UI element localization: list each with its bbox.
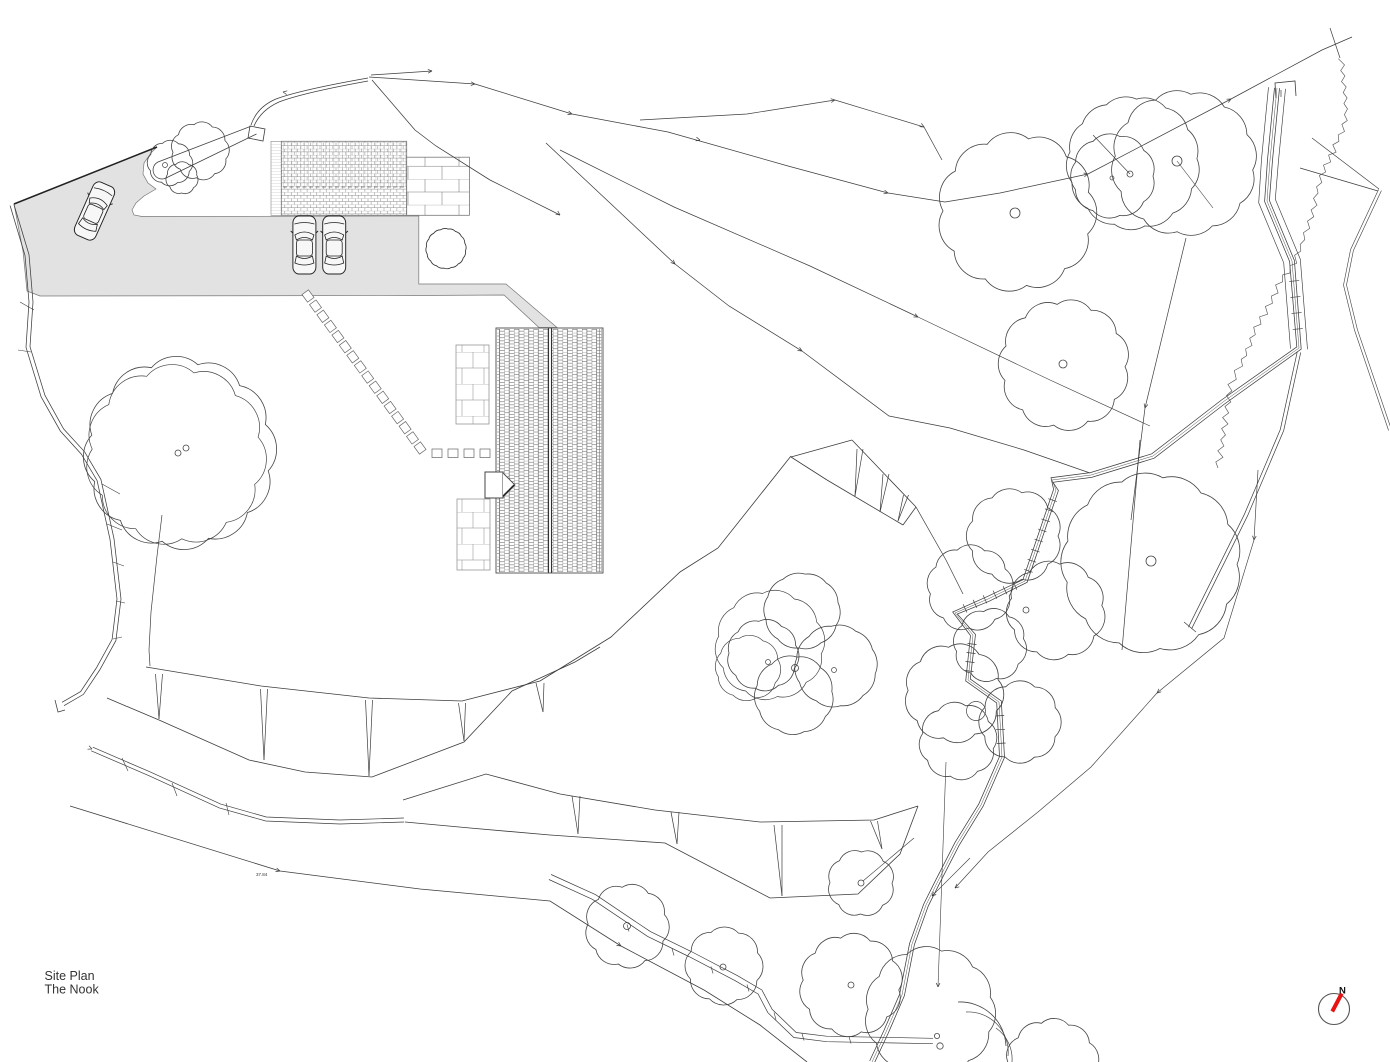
- svg-text:37.84: 37.84: [256, 872, 268, 877]
- svg-text:The Nook: The Nook: [45, 983, 100, 997]
- svg-text:N: N: [1339, 986, 1346, 997]
- svg-text:Site Plan: Site Plan: [45, 969, 95, 983]
